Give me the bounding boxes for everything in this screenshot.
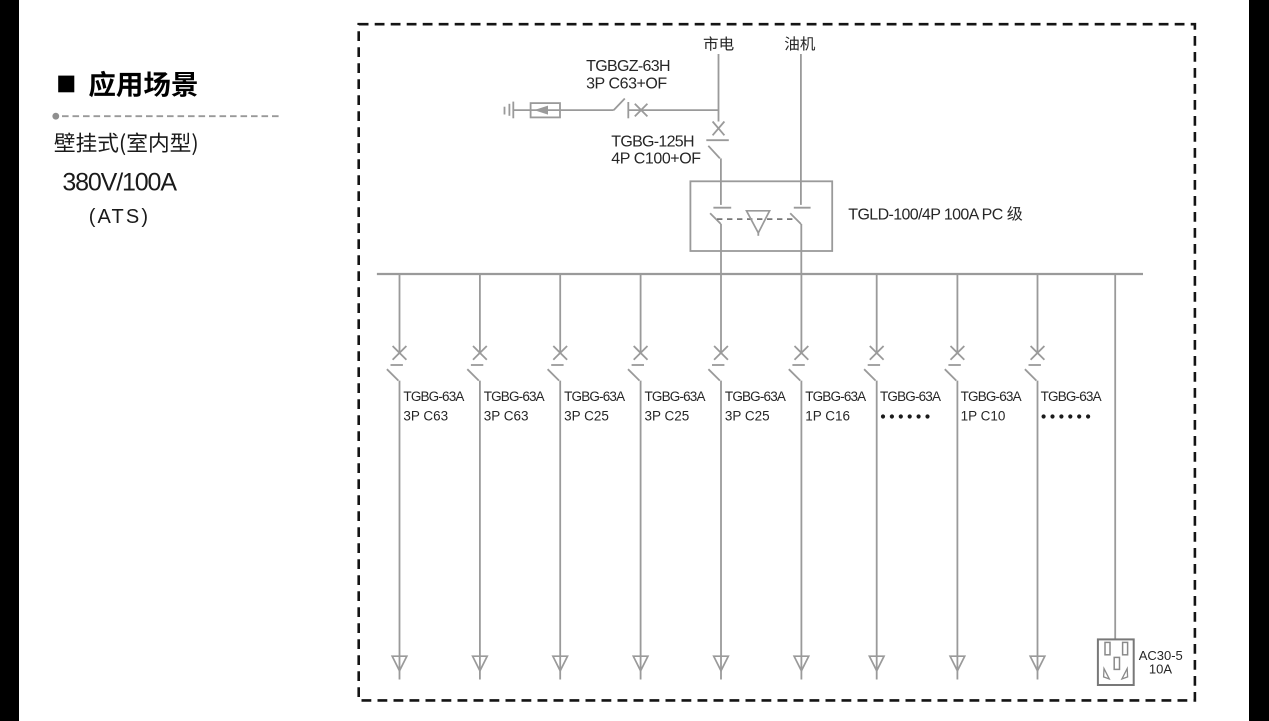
svg-text:TGBG-125H: TGBG-125H — [611, 134, 694, 151]
svg-text:3P C63: 3P C63 — [484, 409, 529, 424]
svg-text:3P C63: 3P C63 — [403, 409, 448, 424]
svg-text:TGBG-63A: TGBG-63A — [880, 389, 941, 404]
svg-text:TGBG-63A: TGBG-63A — [484, 389, 545, 404]
svg-text:TGBG-63A: TGBG-63A — [1041, 389, 1102, 404]
svg-text:(ATS): (ATS) — [89, 206, 148, 228]
svg-text:3P C63+OF: 3P C63+OF — [586, 75, 667, 92]
svg-text:1P C10: 1P C10 — [961, 409, 1006, 424]
svg-text:TGBG-63A: TGBG-63A — [564, 389, 625, 404]
svg-text:3P C25: 3P C25 — [725, 409, 770, 424]
svg-text:1P C16: 1P C16 — [805, 409, 850, 424]
svg-text:TGBG-63A: TGBG-63A — [403, 389, 464, 404]
svg-text:TGBG-63A: TGBG-63A — [645, 389, 706, 404]
svg-text:3P C25: 3P C25 — [645, 409, 690, 424]
svg-text:TGBG-63A: TGBG-63A — [961, 389, 1022, 404]
svg-text:TGBG-63A: TGBG-63A — [805, 389, 866, 404]
svg-text:TGBG-63A: TGBG-63A — [725, 389, 786, 404]
svg-text:3P C25: 3P C25 — [564, 409, 609, 424]
svg-text:TGBGZ-63H: TGBGZ-63H — [586, 58, 670, 75]
svg-text:10A: 10A — [1149, 662, 1172, 677]
svg-text:380V/100A: 380V/100A — [62, 168, 177, 196]
svg-text:4P C100+OF: 4P C100+OF — [611, 150, 701, 167]
svg-text:TGLD-100/4P 100A PC: TGLD-100/4P 100A PC — [848, 207, 1003, 224]
